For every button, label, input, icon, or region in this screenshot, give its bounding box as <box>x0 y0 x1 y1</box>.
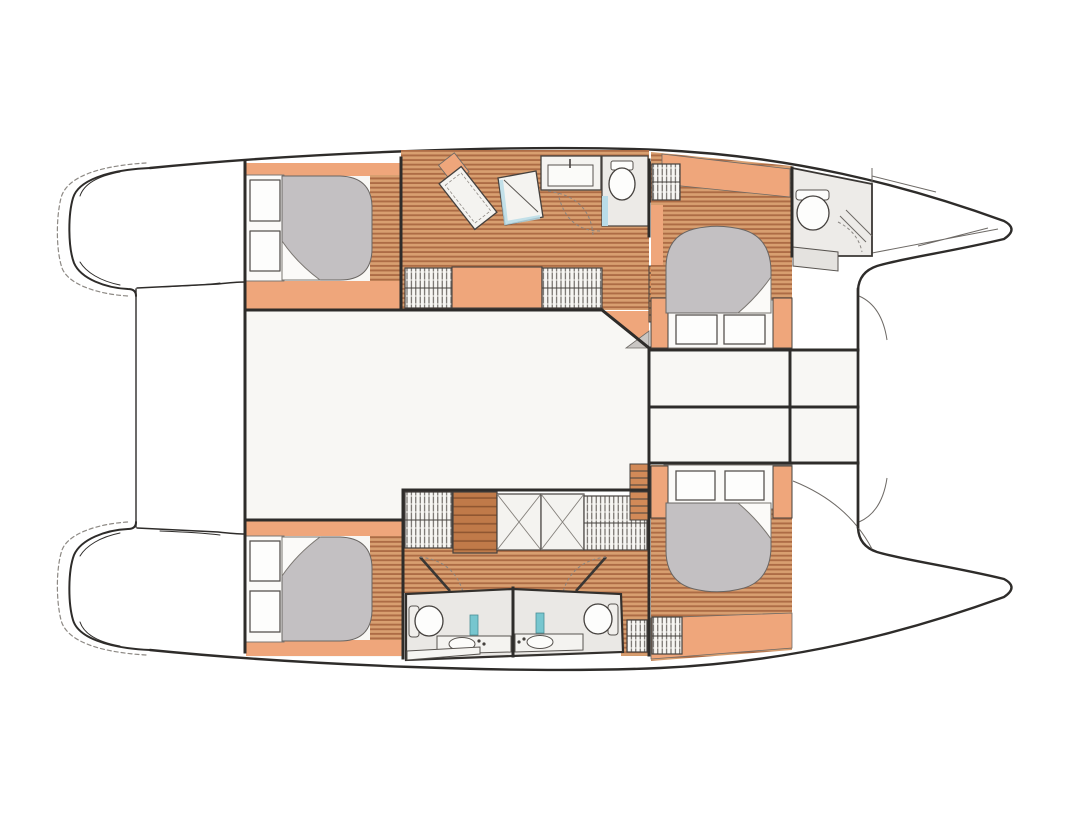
pillow <box>250 591 280 632</box>
toilet <box>415 606 443 636</box>
wardrobe-locker <box>542 268 602 308</box>
pillow <box>676 471 715 500</box>
teak-floor <box>370 536 403 642</box>
faucet-icon <box>477 639 480 642</box>
platform-outer-edge-bottom <box>57 522 146 655</box>
wardrobe-locker <box>652 164 680 200</box>
port-aft-cabin <box>246 163 401 309</box>
bed-post <box>651 298 668 348</box>
galley-cabinet <box>452 267 542 308</box>
faucet-icon <box>522 637 525 640</box>
bed-post <box>651 466 668 518</box>
wardrobe-locker <box>405 268 452 308</box>
pillow <box>250 180 280 221</box>
starboard-transom <box>69 522 150 650</box>
shower-edge <box>602 196 608 226</box>
shower-stall <box>498 171 543 225</box>
basin-unit <box>541 156 601 190</box>
corridor-teak <box>403 548 649 593</box>
starboard-bow-flare <box>859 478 887 522</box>
basin <box>548 165 593 186</box>
aft-deck-edge-bottom <box>137 528 245 534</box>
starboard-forward-cabin <box>651 465 792 661</box>
shower-column <box>536 613 544 633</box>
wardrobe-locker <box>652 617 682 654</box>
cabinet-top-strip <box>246 521 403 536</box>
wardrobe-locker <box>405 492 452 548</box>
platform-outer-edge-top <box>57 163 146 296</box>
toilet <box>584 604 612 634</box>
pillow <box>676 315 717 344</box>
side-strip <box>651 205 663 265</box>
faucet-icon <box>482 642 485 645</box>
faucet-icon <box>517 640 520 643</box>
saloon <box>246 311 649 519</box>
cabinet-bottom-strip <box>246 281 401 309</box>
port-transom-step <box>80 172 220 287</box>
compartment <box>651 409 788 461</box>
pillow <box>725 471 764 500</box>
aft-head-port-side <box>406 589 513 660</box>
aft-head-starboard-side <box>513 589 623 656</box>
floor-plan-page <box>0 0 1088 816</box>
starboard-aft-cabin <box>246 521 403 657</box>
cabinet-top-strip <box>246 163 401 176</box>
bed-post <box>773 298 792 348</box>
compartment <box>792 409 856 461</box>
companionway-steps-cabinet <box>453 492 497 553</box>
companionway-stairs <box>630 464 649 520</box>
shower-column <box>470 615 478 635</box>
catamaran-floor-plan <box>0 0 1088 816</box>
toilet-compartment <box>602 156 648 226</box>
pillow <box>250 541 280 581</box>
bed-post <box>773 466 792 518</box>
saloon-floor <box>246 311 649 519</box>
cross-locker <box>541 494 584 550</box>
compartment <box>792 352 856 406</box>
starboard-transom-step <box>80 531 220 646</box>
port-transom <box>69 168 150 296</box>
port-forward-cabin <box>651 152 872 348</box>
toilet <box>797 196 829 230</box>
small-locker <box>627 620 647 652</box>
port-bow-flare <box>859 296 887 340</box>
compartment <box>651 352 788 406</box>
toilet <box>609 168 635 200</box>
pillow <box>250 231 280 271</box>
teak-floor <box>370 175 401 282</box>
pillow <box>724 315 765 344</box>
ensuite-head <box>792 168 872 271</box>
port-bow-locker-lines <box>872 176 998 253</box>
transoms <box>57 163 220 655</box>
cross-locker <box>497 494 541 550</box>
basin <box>527 636 553 649</box>
